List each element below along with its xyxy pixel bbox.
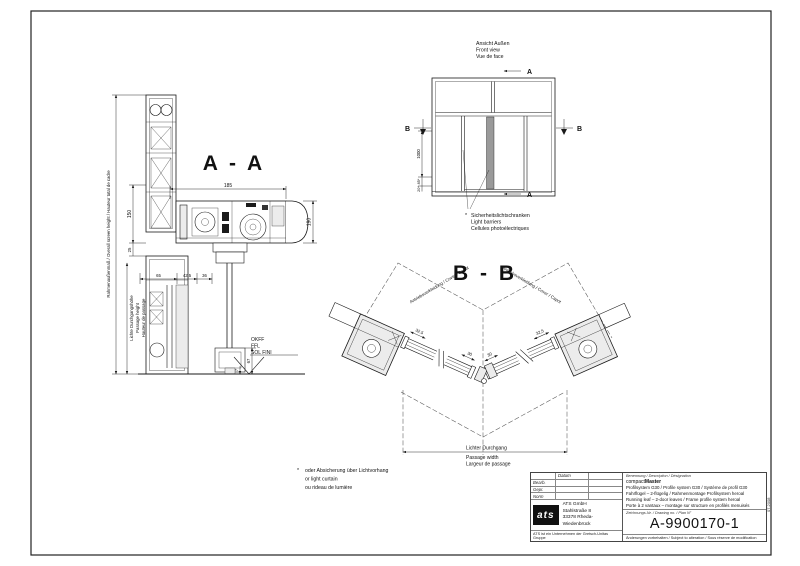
bearb-row: Bearb. — [531, 480, 622, 487]
dim-42-5: 42,5 — [183, 273, 192, 278]
light-curtain-fr: ou rideau de lumière — [305, 485, 352, 491]
dim-1000: 1000 — [416, 149, 421, 159]
drawing-number: A-9900170-1 — [623, 516, 766, 532]
light-barrier-note-fr: Cellules photoélectriques — [471, 226, 529, 232]
gepr-datum-cell — [555, 487, 588, 493]
light-barrier-note-en: Light barriers — [471, 220, 502, 226]
title-block: Datum Bearb. Gepr. Norm ats ATS GmbH Sta… — [530, 472, 767, 542]
floor-label-solfini: SOL FINI — [251, 350, 272, 356]
gepr-name-cell — [588, 487, 622, 493]
datum-column-header: Datum — [555, 473, 588, 479]
title-block-left: Datum Bearb. Gepr. Norm ats ATS GmbH Sta… — [531, 473, 623, 541]
drawing-number-header: Zeichnungs-Nr. / Drawing no. / Plan N° — [623, 509, 766, 516]
dim-67: 67 — [246, 358, 251, 363]
passage-width-de: Lichter Durchgang — [466, 446, 507, 452]
alterations-footer: Änderungen vorbehalten / Subject to alte… — [623, 534, 766, 541]
floor-label-okff: OKFF — [251, 337, 264, 343]
title-block-right: Benennung / Description / Désignation co… — [623, 473, 766, 541]
passage-height-label-de: Lichte Durchgangshöhe — [129, 295, 134, 341]
gepr-label: Gepr. — [531, 487, 555, 492]
cut-letter-a-bottom: A — [527, 192, 532, 199]
company-address: ATS GmbH Stahlstraße 8 33378 Rheda-Wiede… — [563, 502, 620, 528]
light-curtain-marker: * — [297, 468, 299, 474]
title-block-header-row: Datum — [531, 473, 622, 480]
gepr-row: Gepr. — [531, 487, 622, 494]
dim-25: 25 — [127, 247, 132, 252]
passage-height-label-en: Passage height — [135, 302, 140, 332]
edition-date: 07.2008 — [766, 498, 771, 512]
bearb-name-cell — [588, 480, 622, 486]
passage-width-en: Passage width — [466, 455, 499, 461]
overall-height-label: Rahmenaußenmaß / Overall screen height /… — [106, 170, 111, 298]
dim-185: 185 — [224, 183, 233, 189]
company-city: 33378 Rheda-Wiedenbrück — [563, 515, 620, 528]
passage-height-label-fr: Hauteur de passage — [141, 298, 146, 337]
section-aa-title: A - A — [203, 152, 265, 175]
cut-letter-b-left: B — [405, 126, 410, 133]
norm-row: Norm — [531, 493, 622, 500]
dim-small-2: 20* — [417, 186, 421, 192]
company-tagline: ATS ist ein Unternehmen der Gretsch-Unit… — [531, 530, 622, 541]
name-column — [588, 473, 622, 479]
company-area: ats ATS GmbH Stahlstraße 8 33378 Rheda-W… — [531, 500, 622, 530]
ats-logo: ats — [533, 505, 559, 525]
front-view-title-en: Front view — [476, 48, 500, 54]
dim-150: 150 — [127, 210, 133, 219]
passage-width-fr: Largeur de passage — [466, 462, 511, 468]
dim-small-1: 85* — [417, 178, 421, 184]
light-curtain-de: oder Absicherung über Lichtvorhang — [305, 468, 388, 474]
floor-label-ffl: FFL — [251, 344, 260, 350]
dim-190: 190 — [307, 218, 313, 227]
cut-letter-b-right: B — [577, 126, 582, 133]
bearb-label: Bearb. — [531, 480, 555, 485]
front-view-title-fr: Vue de face — [476, 54, 504, 60]
front-view-title-de: Ansicht Außen — [476, 41, 510, 47]
light-barrier-marker: * — [465, 213, 467, 219]
drawing-sheet: A - A 185 190 150 25 65 42,5 36 67 7 Rah… — [0, 0, 800, 566]
norm-label: Norm — [531, 494, 555, 499]
dim-65: 65 — [156, 273, 161, 278]
norm-datum-cell — [555, 493, 588, 499]
dim-36: 36 — [202, 273, 207, 278]
norm-name-cell — [588, 493, 622, 499]
light-curtain-en: or light curtain — [305, 477, 338, 483]
cut-letter-a-top: A — [527, 69, 532, 76]
light-barrier-note-de: Sicherheitslichtschranken — [471, 213, 530, 219]
bearb-datum-cell — [555, 480, 588, 486]
